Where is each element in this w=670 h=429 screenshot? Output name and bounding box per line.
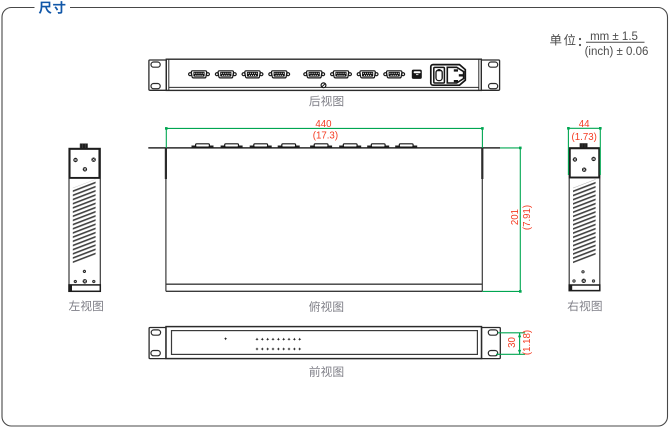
svg-text:(inch) ± 0.06: (inch) ± 0.06 — [585, 46, 649, 58]
svg-text:mm ± 1.5: mm ± 1.5 — [590, 31, 638, 43]
svg-text:(17.3): (17.3) — [313, 130, 338, 141]
svg-text:(7.91): (7.91) — [522, 205, 533, 230]
svg-text:44: 44 — [579, 119, 590, 130]
svg-text:(1.18): (1.18) — [522, 330, 533, 355]
svg-text:201: 201 — [510, 209, 521, 225]
svg-text:30: 30 — [507, 337, 518, 348]
svg-text:(1.73): (1.73) — [572, 132, 597, 143]
svg-text:440: 440 — [315, 119, 332, 130]
